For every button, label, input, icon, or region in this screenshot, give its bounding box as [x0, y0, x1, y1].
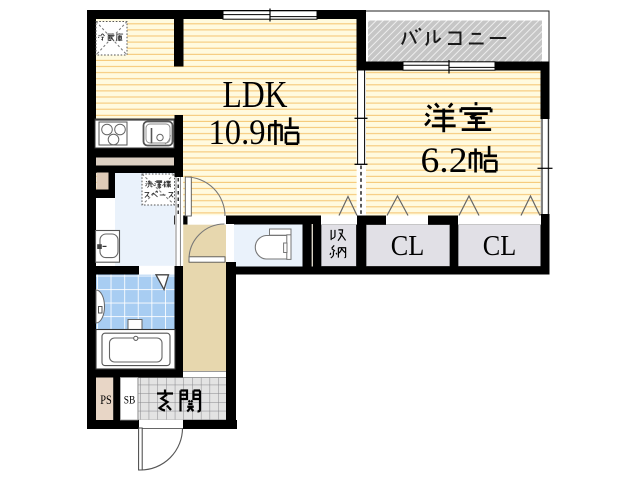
svg-text:10.9: 10.9: [209, 112, 266, 152]
svg-text:PS: PS: [100, 392, 112, 407]
svg-text:CL: CL: [391, 231, 425, 262]
svg-text:CL: CL: [483, 231, 517, 262]
svg-text:6.2: 6.2: [421, 140, 468, 180]
svg-text:LDK: LDK: [223, 74, 288, 116]
svg-text:SB: SB: [124, 393, 136, 407]
